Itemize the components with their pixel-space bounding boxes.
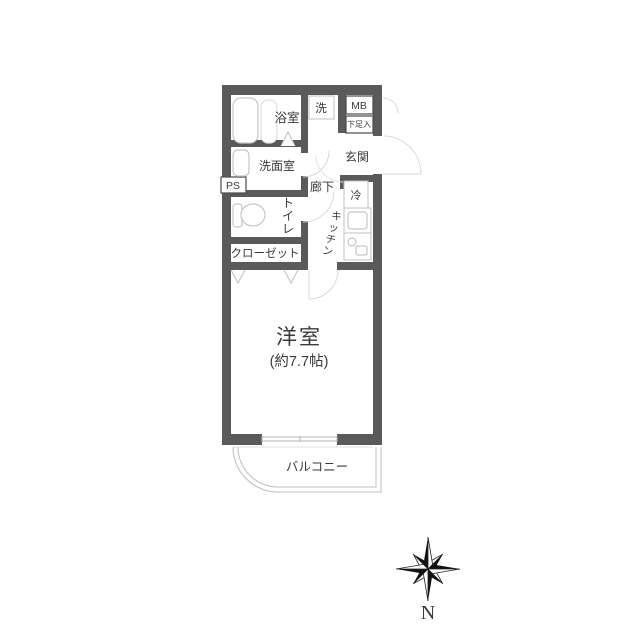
wall-bottom-right-block xyxy=(337,434,382,445)
meter-box-label: MB xyxy=(351,100,367,112)
bathtub-icon xyxy=(233,98,258,143)
wash-basin-icon xyxy=(233,150,249,176)
wall-toilet-closet xyxy=(222,237,308,244)
floor-plan-svg: 浴室 洗 MB 下足入 玄関 洗面室 PS 廊下 冷 トイレ キッチン クローゼ… xyxy=(0,0,640,640)
main-room-size-label: (約7.7帖) xyxy=(270,353,329,370)
sink-drain-icon xyxy=(348,238,356,246)
closet-label: クローゼット xyxy=(231,247,300,260)
north-label: N xyxy=(421,602,435,624)
compass-rose: N xyxy=(396,537,460,624)
shoe-box-label: 下足入 xyxy=(347,120,371,129)
window-group xyxy=(262,436,337,442)
bathroom-label: 浴室 xyxy=(274,110,299,125)
wall-right-upper xyxy=(373,95,382,136)
sink-basin-icon xyxy=(356,246,367,255)
refrigerator-label: 冷 xyxy=(351,189,362,202)
pipe-space-label: PS xyxy=(226,180,240,192)
washroom-label: 洗面室 xyxy=(259,158,295,173)
compass-cardinal-points xyxy=(396,537,460,601)
closet-door-right-icon xyxy=(284,270,298,283)
kitchen-label: キッチン xyxy=(321,210,343,259)
mainroom-door-arc xyxy=(309,270,338,299)
washing-machine-label: 洗 xyxy=(315,102,327,115)
washroom-door-arc xyxy=(303,151,329,177)
wall-kitchen-mainroom xyxy=(337,262,373,270)
meter-box-door-arc xyxy=(383,98,398,113)
wall-mb-stub xyxy=(338,95,346,133)
wall-bottom-left-block xyxy=(222,434,262,445)
entrance-step-arc xyxy=(316,155,343,182)
toilet-bowl-icon xyxy=(241,204,265,226)
wall-inner-column-1 xyxy=(301,95,308,140)
hallway-label: 廊下 xyxy=(310,179,334,194)
toilet-label: トイレ xyxy=(282,196,294,236)
floor-plan-image: 浴室 洗 MB 下足入 玄関 洗面室 PS 廊下 冷 トイレ キッチン クローゼ… xyxy=(0,0,640,640)
wall-closet-mainroom xyxy=(222,262,308,270)
wall-inner-column-3 xyxy=(301,176,308,191)
stove-icon xyxy=(348,212,367,229)
wall-right-lower xyxy=(373,174,382,445)
wall-inner-column-2 xyxy=(301,147,308,153)
bath-folding-door-icon xyxy=(281,132,295,146)
main-room-label: 洋室 xyxy=(276,326,322,349)
closet-door-left-icon xyxy=(231,270,245,283)
entrance-label: 玄関 xyxy=(345,149,369,164)
balcony-label: バルコニー xyxy=(286,460,348,474)
wall-top xyxy=(222,85,382,95)
entrance-door-arc xyxy=(383,136,421,174)
